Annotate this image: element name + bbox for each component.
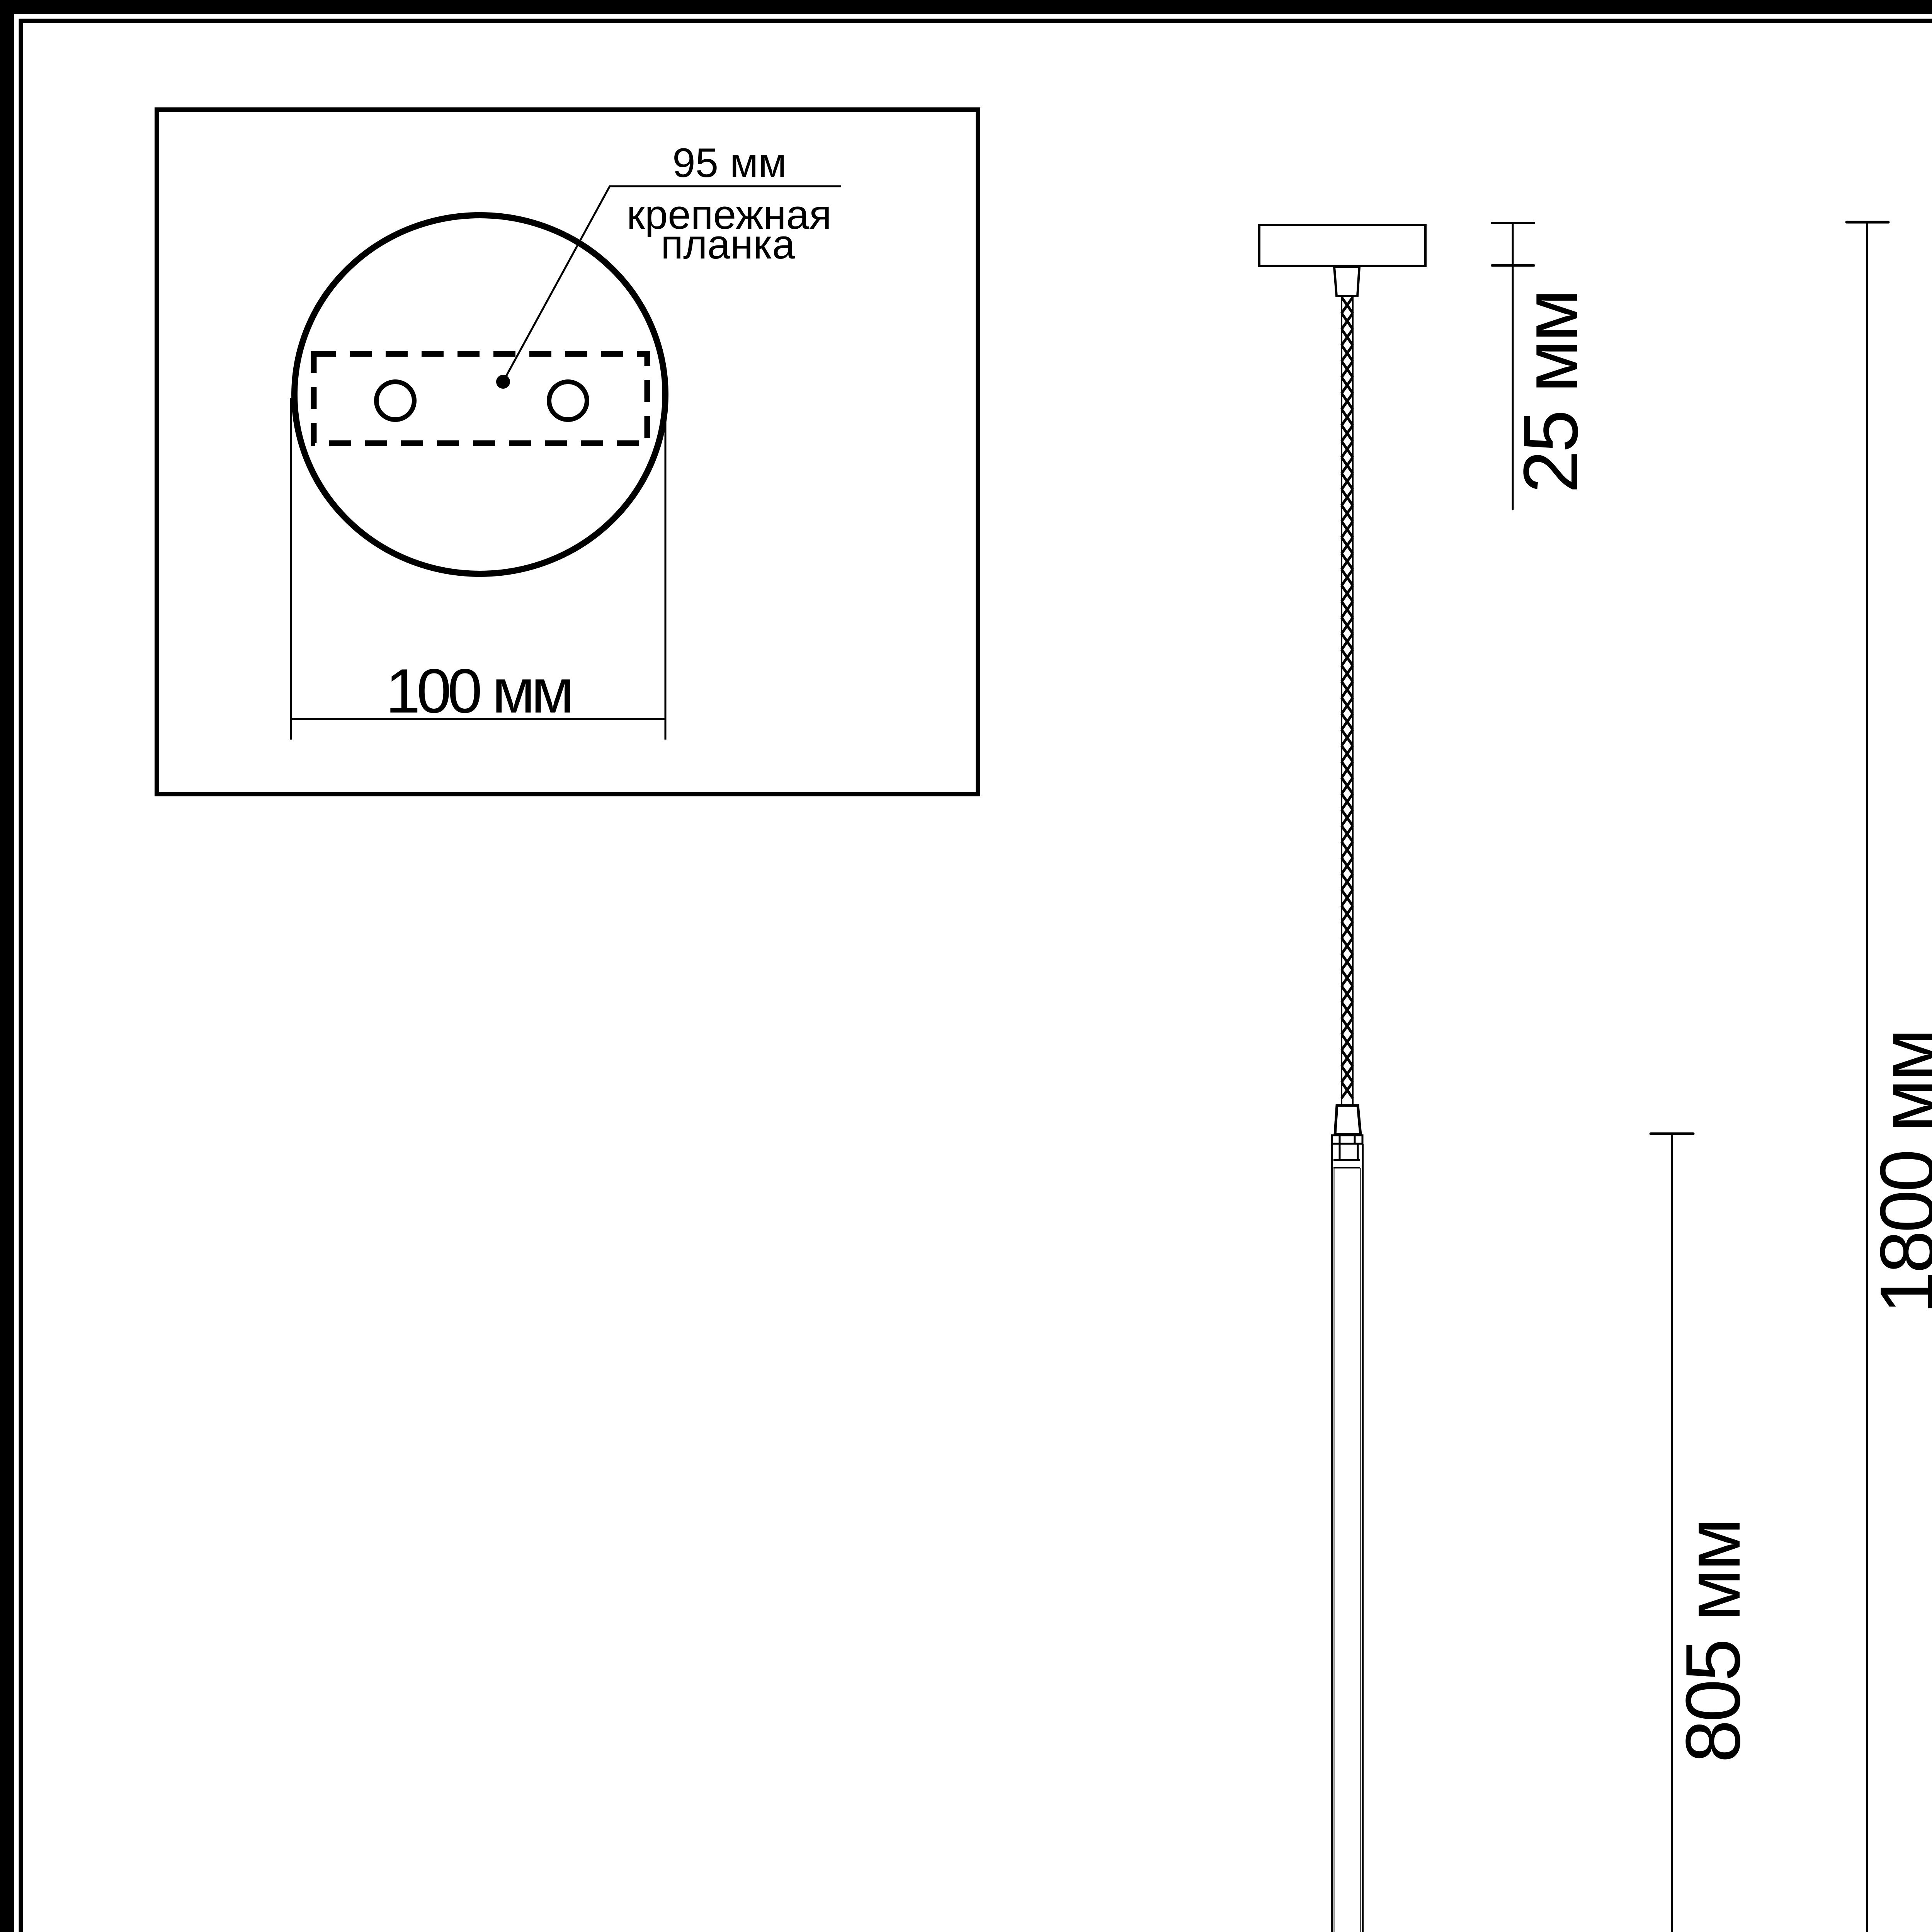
svg-text:25 мм: 25 мм (1508, 291, 1594, 493)
svg-text:805 мм: 805 мм (1670, 1520, 1756, 1763)
svg-text:планка: планка (661, 221, 795, 267)
svg-text:95 мм: 95 мм (672, 139, 787, 186)
svg-text:1800 мм: 1800 мм (1864, 1031, 1932, 1314)
svg-text:100 мм: 100 мм (386, 656, 570, 726)
